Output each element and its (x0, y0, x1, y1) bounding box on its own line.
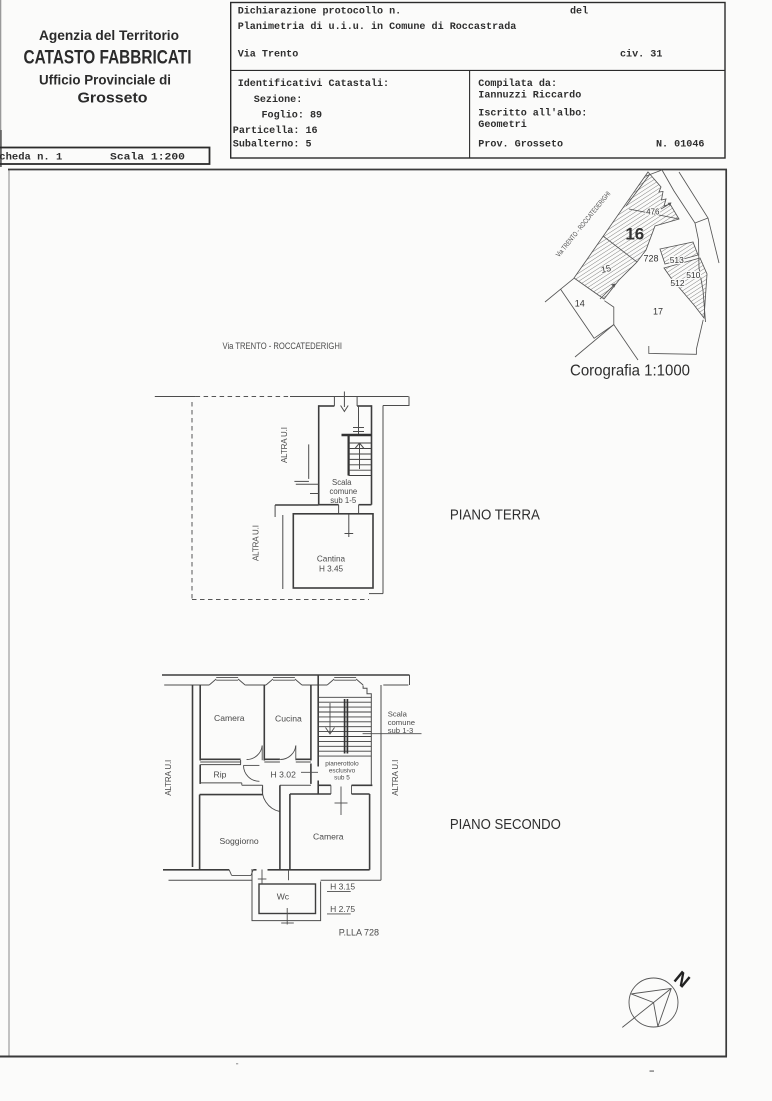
svg-text:PIANO TERRA: PIANO TERRA (450, 508, 540, 524)
svg-text:N: N (669, 968, 693, 993)
svg-text:Agenzia del Territorio: Agenzia del Territorio (39, 27, 179, 43)
svg-text:Corografia 1:1000: Corografia 1:1000 (570, 363, 690, 380)
svg-text:Cantina: Cantina (317, 555, 346, 564)
svg-text:17: 17 (653, 307, 663, 317)
svg-text:Cucina: Cucina (275, 714, 302, 724)
svg-text:14: 14 (575, 299, 585, 309)
svg-text:728: 728 (643, 254, 658, 264)
svg-text:comune: comune (330, 487, 358, 496)
svg-text:PIANO SECONDO: PIANO SECONDO (450, 817, 561, 833)
svg-text:Ufficio Provinciale di: Ufficio Provinciale di (39, 72, 171, 88)
svg-text:Via TRENTO - ROCCATEDERIGHI: Via TRENTO - ROCCATEDERIGHI (223, 341, 343, 351)
svg-text:Iannuzzi Riccardo: Iannuzzi Riccardo (478, 90, 581, 102)
svg-text:Soggiorno: Soggiorno (220, 836, 259, 846)
svg-text:ALTRA U.I: ALTRA U.I (391, 760, 400, 796)
svg-text:Scala: Scala (332, 478, 352, 487)
svg-text:sub 1-3: sub 1-3 (388, 726, 414, 735)
svg-text:513: 513 (670, 255, 684, 265)
svg-text:P.LLA 728: P.LLA 728 (339, 928, 379, 938)
svg-text:Camera: Camera (214, 713, 245, 723)
svg-text:16: 16 (625, 225, 644, 244)
svg-text:sub 5: sub 5 (334, 775, 350, 782)
svg-text:Via Trento: Via Trento (238, 49, 299, 61)
svg-text:H 2.75: H 2.75 (330, 904, 355, 914)
svg-text:Foglio: 89: Foglio: 89 (262, 110, 323, 122)
svg-text:sub 1-5: sub 1-5 (330, 496, 357, 505)
svg-text:15: 15 (600, 263, 612, 275)
svg-text:Wc: Wc (277, 892, 290, 902)
svg-text:Rip: Rip (214, 770, 227, 780)
svg-text:Sezione:: Sezione: (254, 94, 302, 106)
svg-text:Subalterno: 5: Subalterno: 5 (233, 139, 312, 151)
svg-text:ALTRA U.I: ALTRA U.I (252, 525, 261, 561)
svg-text:510: 510 (686, 270, 700, 280)
svg-text:del: del (570, 6, 588, 18)
svg-text:Scala 1:200: Scala 1:200 (110, 152, 185, 164)
svg-text:Compilata da:: Compilata da: (478, 78, 557, 90)
svg-text:esclusivo: esclusivo (329, 768, 356, 775)
svg-text:H 3.45: H 3.45 (319, 565, 344, 574)
svg-text:ALTRA U.I: ALTRA U.I (280, 427, 289, 463)
svg-text:Scheda n. 1: Scheda n. 1 (0, 152, 62, 164)
svg-text:Iscritto all'albo:: Iscritto all'albo: (478, 108, 587, 120)
svg-text:H 3.15: H 3.15 (330, 882, 355, 892)
svg-text:H 3.02: H 3.02 (271, 770, 297, 780)
svg-text:Grosseto: Grosseto (78, 90, 148, 107)
svg-text:Particella: 16: Particella: 16 (233, 125, 318, 137)
svg-text:Planimetria di u.i.u. in Comun: Planimetria di u.i.u. in Comune di Rocca… (238, 21, 517, 33)
svg-text:Identificativi Catastali:: Identificativi Catastali: (238, 78, 389, 90)
svg-text:CATASTO FABBRICATI: CATASTO FABBRICATI (24, 48, 192, 69)
svg-text:Camera: Camera (313, 832, 344, 842)
svg-text:Dichiarazione protocollo n.: Dichiarazione protocollo n. (238, 6, 402, 18)
svg-text:pianerottolo: pianerottolo (325, 761, 359, 768)
svg-text:Geometri: Geometri (478, 119, 526, 131)
svg-text:ALTRA U.I: ALTRA U.I (164, 760, 173, 796)
svg-text:476: 476 (646, 208, 660, 217)
svg-text:Prov. Grosseto: Prov. Grosseto (478, 140, 563, 151)
svg-text:civ. 31: civ. 31 (620, 49, 662, 61)
svg-text:512: 512 (670, 278, 684, 288)
svg-text:N. 01046: N. 01046 (656, 140, 704, 151)
